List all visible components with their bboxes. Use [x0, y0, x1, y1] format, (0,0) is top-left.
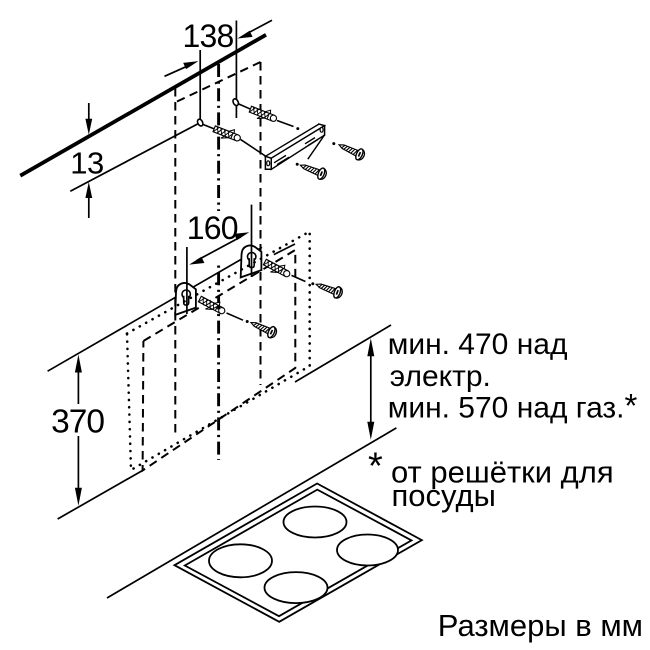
svg-text:370: 370	[51, 403, 104, 440]
svg-text:*: *	[368, 446, 383, 488]
svg-text:13: 13	[70, 146, 103, 181]
svg-text:160: 160	[187, 210, 238, 246]
svg-text:138: 138	[183, 18, 234, 54]
svg-text:посуды: посуды	[392, 478, 496, 513]
svg-text:мин. 570 над газ.: мин. 570 над газ.	[388, 392, 625, 425]
svg-text:мин. 470 над: мин. 470 над	[388, 328, 568, 361]
svg-text:*: *	[625, 387, 638, 424]
svg-text:Размеры в мм: Размеры в мм	[438, 608, 643, 643]
svg-text:электр.: электр.	[390, 360, 491, 393]
